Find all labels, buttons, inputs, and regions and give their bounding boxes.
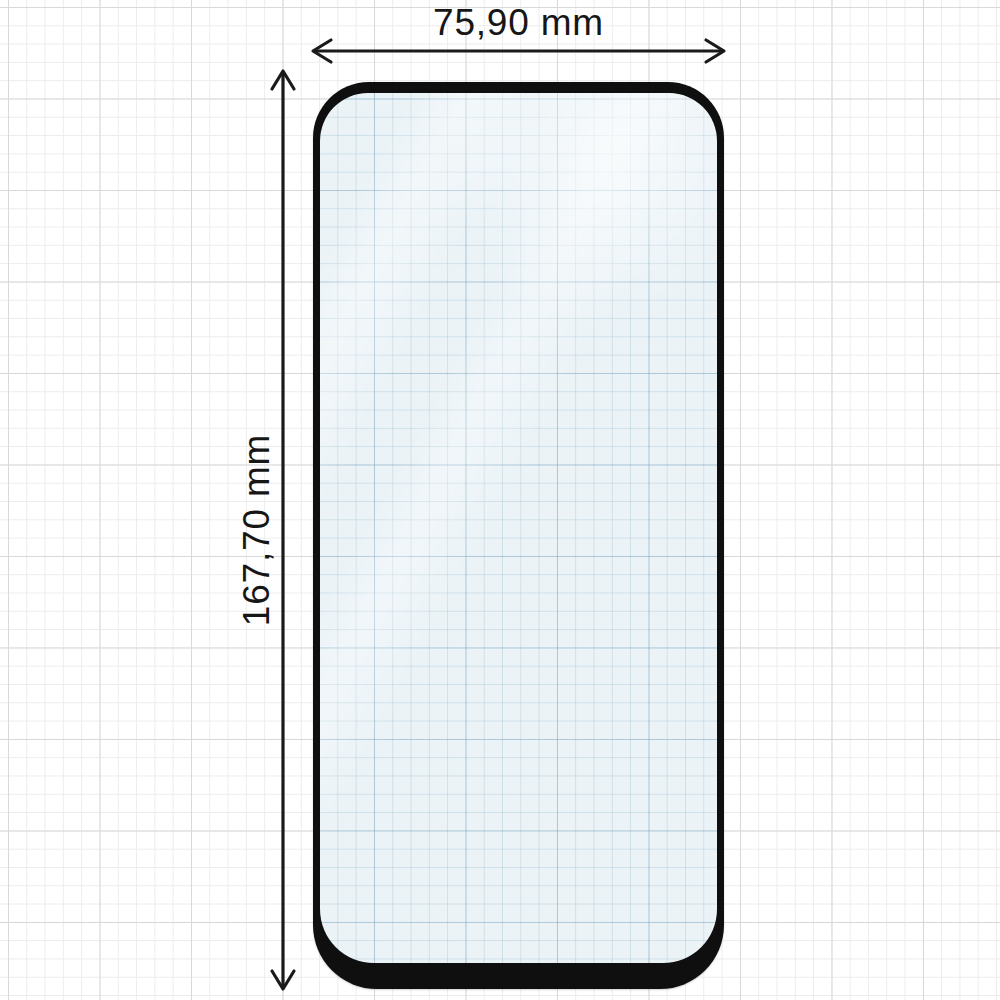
- height-dimension-label: 167,70 mm: [238, 434, 275, 626]
- dimension-diagram: 75,90 mm 167,70 mm: [0, 0, 1000, 1000]
- screen-protector-frame: [313, 82, 724, 989]
- width-dimension-label: 75,90 mm: [313, 4, 724, 41]
- glass-surface: [320, 93, 717, 963]
- glass-reflection: [320, 93, 717, 963]
- width-arrow-icon: [313, 40, 724, 62]
